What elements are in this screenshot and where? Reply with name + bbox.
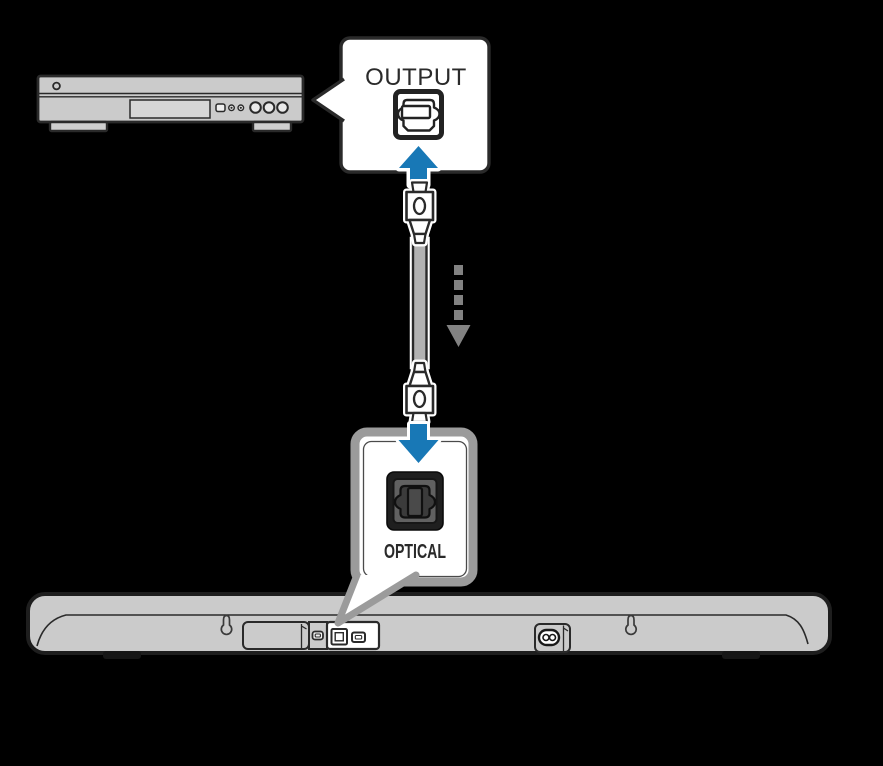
keyhole-icon [626,616,636,635]
soundbar [28,594,830,659]
power-inlet-panel [535,624,570,652]
cable-cord [413,240,427,366]
output-label: OUTPUT [365,64,467,91]
power-inlet-icon [539,630,559,645]
optical-label: OPTICAL [384,541,446,563]
optical-cable [407,183,434,423]
display-window [216,104,225,112]
output-callout: OUTPUT [313,38,489,172]
keyhole-icon [221,616,231,635]
connection-diagram: OUTPUT [0,0,883,766]
soundbar-body [28,594,830,653]
disc-player [38,76,303,131]
disc-tray [130,100,210,118]
rear-recess-panel [243,622,309,649]
soundbar-foot-right [722,651,760,659]
optical-input-port [332,629,348,645]
service-port-panel [309,622,327,649]
toslink-output-port-icon [396,92,442,138]
hdmi-port-icon [352,633,365,643]
service-port-icon [313,632,324,640]
optical-input-jack-icon [387,472,443,530]
player-foot-left [50,122,107,131]
player-large-buttons [250,102,288,113]
player-foot-right [253,122,291,131]
soundbar-foot-left [103,651,141,659]
input-port-panel [327,622,379,649]
